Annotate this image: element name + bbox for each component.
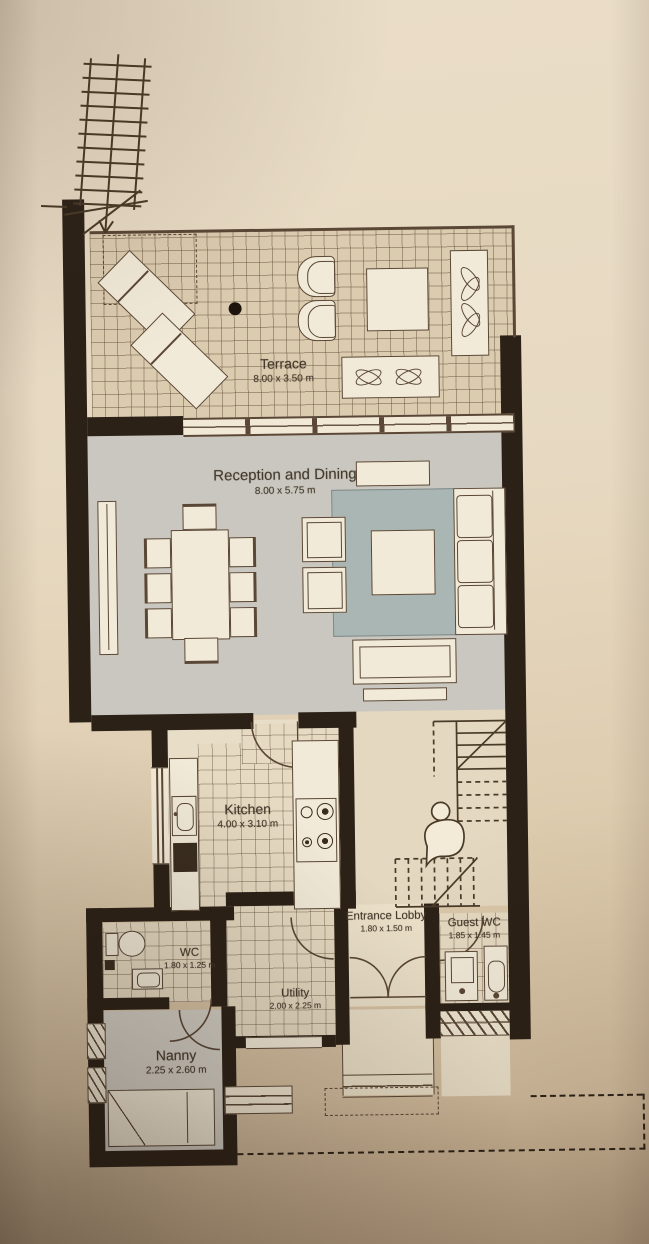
tv-cabinet-shelf — [363, 687, 447, 701]
internal-staircase — [389, 715, 510, 912]
guest-wc-toilet — [484, 945, 509, 1000]
reception-label: Reception and Dining 8.00 x 5.75 m — [175, 465, 395, 499]
oven — [173, 843, 197, 872]
wall-nanny-bottom — [89, 1149, 237, 1167]
nanny-dims: 2.25 x 2.60 m — [116, 1064, 236, 1078]
armchair-1 — [302, 517, 347, 563]
dining-chair-bottom — [184, 637, 218, 663]
floor-plan-photo: Terrace 8.00 x 3.50 m Reception and Dini… — [0, 0, 649, 1244]
utility-window — [246, 1036, 322, 1049]
nanny-label: Nanny 2.25 x 2.60 m — [116, 1046, 236, 1078]
kitchen-window — [151, 767, 169, 864]
boundary-dashed-bottom — [237, 1148, 645, 1156]
wall-reception-bottom-left — [91, 713, 253, 731]
porch-dashed-outline — [325, 1086, 439, 1116]
nanny-bed — [108, 1089, 216, 1147]
guest-side-steps — [441, 1035, 511, 1096]
wall-wc-bottom — [87, 997, 169, 1010]
kitchen-name: Kitchen — [168, 800, 328, 820]
guest-wc-dims: 1.85 x 1.45 m — [434, 930, 514, 942]
wall-nanny-right — [221, 1006, 237, 1154]
dining-chair-left-2 — [144, 573, 171, 603]
wc-dims: 1.80 x 1.25 m — [138, 960, 242, 972]
dining-chair-left-1 — [144, 538, 171, 568]
kitchen-dims: 4.00 x 3.10 m — [168, 817, 328, 832]
utility-steps — [224, 1085, 292, 1114]
dining-table — [171, 529, 231, 640]
kitchen-label: Kitchen 4.00 x 3.10 m — [168, 800, 328, 832]
wc-floor-drain — [105, 960, 115, 970]
dining-chair-right-2 — [229, 572, 256, 602]
coffee-table — [371, 529, 436, 595]
lobby-label: Entrance Lobby 1.80 x 1.50 m — [341, 909, 431, 935]
nanny-window-2 — [87, 1067, 107, 1103]
dining-chair-right-1 — [229, 537, 256, 567]
planter-bench-right — [450, 250, 489, 357]
wc-label: WC 1.80 x 1.25 m — [138, 945, 242, 971]
guest-wc-vanity — [445, 951, 479, 1001]
sideboard — [97, 501, 118, 655]
wc-name: WC — [138, 945, 242, 961]
nanny-window-1 — [87, 1023, 107, 1059]
dining-chair-left-3 — [145, 608, 172, 638]
guest-wc-label: Guest WC 1.85 x 1.45 m — [434, 915, 514, 941]
tub-chair-1 — [297, 256, 336, 298]
tub-chair-2 — [298, 300, 337, 342]
utility-label: Utility 2.00 x 2.25 m — [230, 986, 360, 1013]
external-staircase — [52, 45, 236, 257]
utility-door-arc — [291, 917, 334, 960]
sofa — [453, 487, 507, 635]
lobby-dims: 1.80 x 1.50 m — [341, 923, 431, 935]
column-dot — [229, 302, 242, 315]
lobby-double-door — [350, 957, 427, 998]
guest-wc-grille — [440, 1010, 509, 1036]
nanny-door-arc — [179, 1010, 220, 1051]
boundary-dashed-right — [643, 1094, 646, 1150]
wall-terrace-reception — [87, 416, 183, 436]
terrace-label: Terrace 8.00 x 3.50 m — [193, 354, 373, 387]
boundary-dashed-side — [531, 1094, 643, 1098]
lobby-name: Entrance Lobby — [341, 909, 431, 925]
utility-dims: 2.00 x 2.25 m — [230, 1000, 360, 1012]
guest-wc-name: Guest WC — [434, 915, 514, 930]
dining-chair-top — [182, 503, 216, 529]
tv-cabinet — [352, 638, 457, 684]
wc-toilet-tank — [105, 933, 118, 956]
terrace-table — [366, 268, 429, 332]
floor-plan: Terrace 8.00 x 3.50 m Reception and Dini… — [0, 0, 649, 1244]
terrace-dims: 8.00 x 3.50 m — [194, 372, 374, 387]
armchair-2 — [302, 567, 347, 614]
nanny-name: Nanny — [116, 1046, 236, 1065]
wall-kitchen-right — [338, 719, 356, 909]
wall-left-outer — [62, 199, 91, 722]
dining-chair-right-3 — [230, 607, 257, 637]
